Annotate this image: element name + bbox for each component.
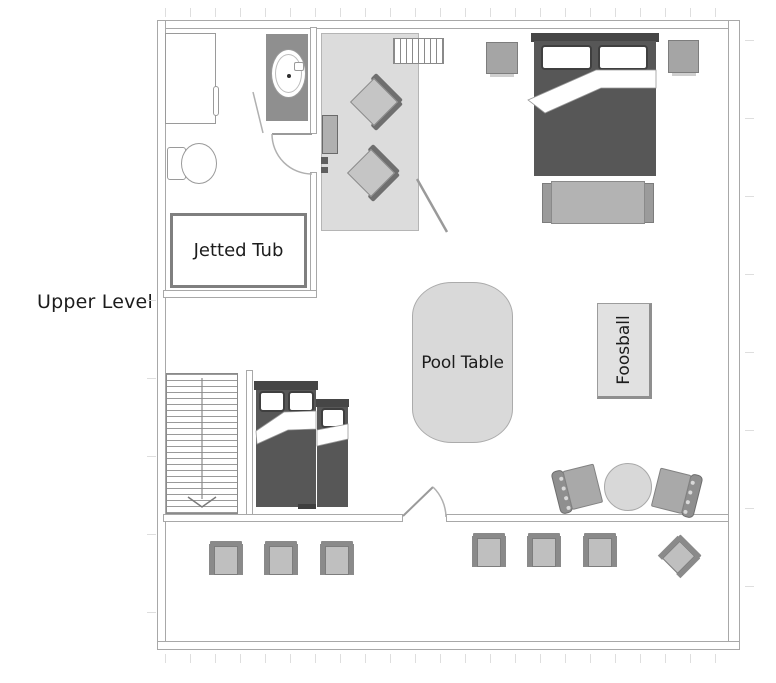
leaning-board [417,179,447,232]
shower [165,33,216,124]
wall-right [728,20,740,650]
shower-door-line [253,92,263,133]
floor-plan: Upper Level Jetted Tub [0,0,776,683]
jetted-tub-label: Jetted Tub [194,240,284,261]
deck-chair-2 [264,541,298,579]
spindle-chair-right [648,463,704,521]
faucet-icon [294,62,304,71]
wall-fixture-1 [321,157,328,164]
pillow-icon [598,45,648,70]
jetted-tub: Jetted Tub [170,213,307,288]
wall-bathroom-upper [310,27,317,134]
nightstand-shadow [672,73,696,76]
balcony-door-panel [403,487,433,516]
deck-chair-3 [320,541,354,579]
deck-chair-7 [656,534,703,581]
foosball-table: Foosball [597,303,652,399]
pillow-icon [321,408,345,428]
spindle-chair-left [550,459,606,517]
wall-bathroom-lower [310,172,317,298]
main-staircase [166,373,238,514]
wall-bottom [157,641,740,650]
bathroom-door-swing [272,134,312,174]
wall-bathroom-bottom [163,290,317,298]
console-table [322,115,338,154]
ruler-ticks-top [165,8,735,17]
sink-drain [287,74,291,78]
ruler-ticks-left [147,300,156,620]
pool-table: Pool Table [412,282,513,443]
toilet-icon [181,143,217,184]
wall-staircase [246,370,253,516]
wall-fixture-2 [321,167,328,173]
wall-balcony-left [163,514,403,522]
nightstand-right [668,40,699,73]
foosball-label: Foosball [614,315,634,385]
deck-chair-4 [472,533,506,571]
nightstand-shadow [490,74,514,77]
pillow-icon [541,45,592,70]
balcony-door-swing [433,487,446,517]
wall-top [157,20,740,29]
round-table [604,463,652,511]
nightstand-left [486,42,518,74]
level-label: Upper Level [37,291,153,313]
shower-door-handle-icon [213,86,219,116]
twin-bed-headboard [316,399,349,407]
ruler-ticks-right [745,40,754,610]
bench-leg [644,183,654,223]
deck-chair-1 [209,541,243,579]
bed-foot [298,504,316,509]
deck-chair-6 [583,533,617,571]
upper-staircase [393,38,444,64]
pillow-icon [288,391,314,412]
bed-bench [551,181,645,224]
double-bed-headboard [254,381,318,390]
deck-chair-5 [527,533,561,571]
ruler-ticks-bottom [165,654,735,663]
pillow-icon [259,391,285,412]
pool-table-label: Pool Table [421,353,504,373]
